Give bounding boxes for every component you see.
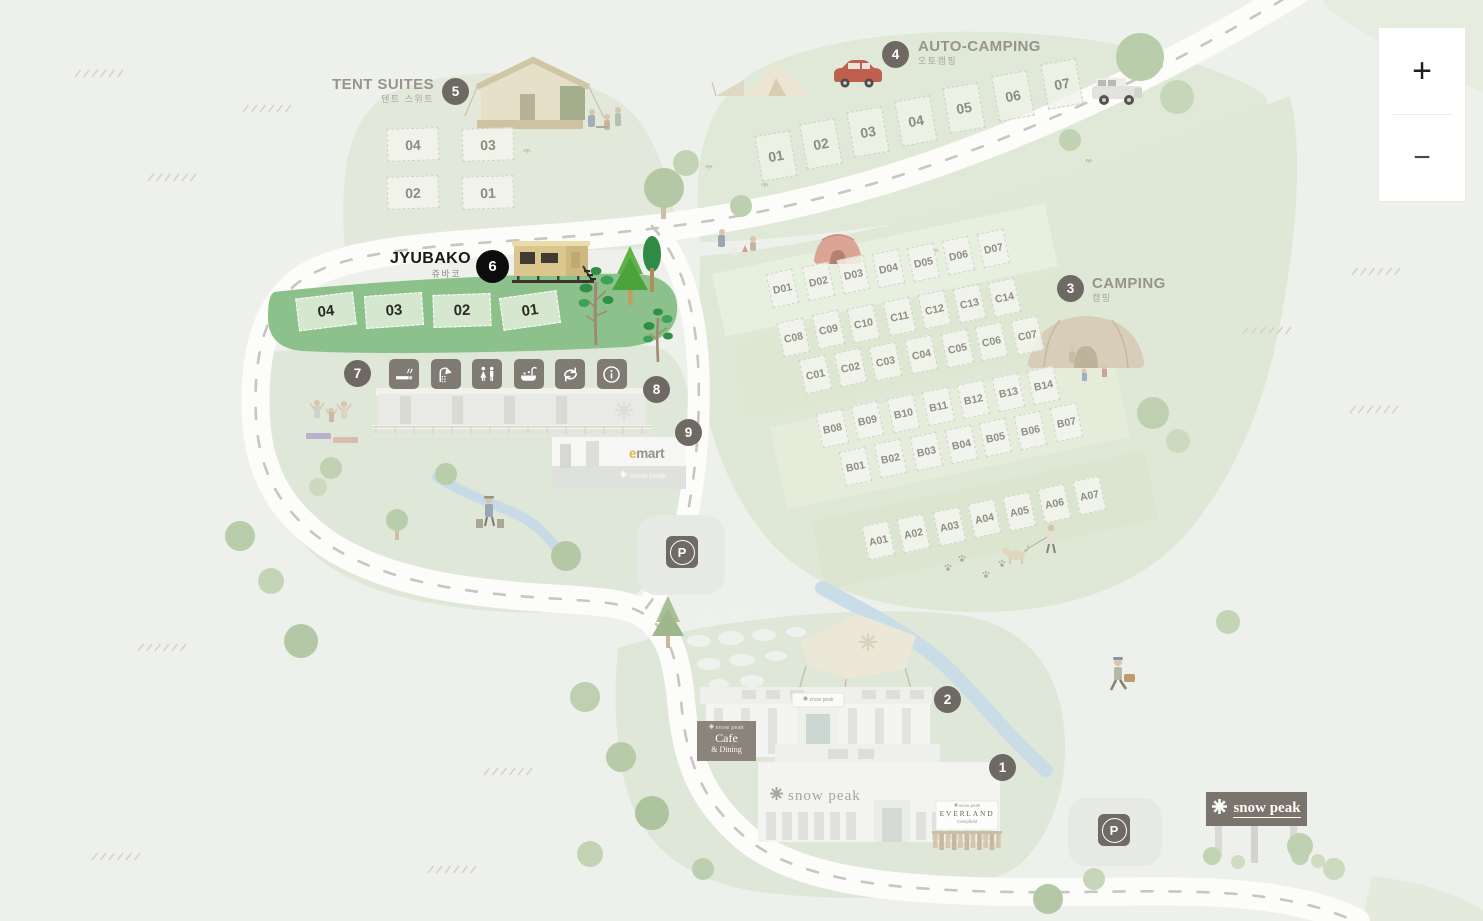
marker-8[interactable]: 8 bbox=[643, 376, 670, 403]
site-tile-A01: A01 bbox=[861, 520, 895, 560]
auto-camping-title: AUTO-CAMPING bbox=[918, 39, 1041, 54]
parking-icon: P bbox=[1098, 814, 1130, 846]
site-tile-A04: A04 bbox=[967, 498, 1001, 538]
site-tile-B02: B02 bbox=[873, 438, 907, 478]
site-tile-C01: C01 bbox=[798, 354, 832, 394]
zoom-control: + − bbox=[1378, 27, 1466, 202]
site-tile-05: 05 bbox=[942, 82, 985, 134]
site-tile-02: 02 bbox=[386, 175, 439, 210]
site-tile-04: 04 bbox=[894, 95, 937, 147]
site-tile-A05: A05 bbox=[1002, 491, 1036, 531]
site-tile-C07: C07 bbox=[1010, 315, 1044, 355]
site-tile-C02: C02 bbox=[833, 347, 867, 387]
site-tile-01: 01 bbox=[499, 290, 561, 331]
smoking-area-icon bbox=[389, 359, 419, 389]
cafe-dining-sign: snow peak Cafe & Dining bbox=[697, 721, 756, 761]
site-tile-B09: B09 bbox=[850, 400, 884, 440]
zone-label-tent-suites: TENT SUITES 텐트 스위트 bbox=[312, 77, 434, 104]
snow-peak-logo-icon bbox=[954, 803, 958, 808]
site-tile-A07: A07 bbox=[1072, 475, 1106, 515]
cafe-sign-subtitle: & Dining bbox=[697, 746, 756, 755]
site-tile-06: 06 bbox=[991, 70, 1034, 122]
site-tile-B03: B03 bbox=[909, 431, 943, 471]
camping-subtitle: 캠핑 bbox=[1092, 294, 1166, 303]
site-tile-04: 04 bbox=[386, 127, 439, 162]
jyubako-title: JYUBAKO bbox=[361, 251, 471, 267]
site-tile-03: 03 bbox=[461, 127, 514, 162]
camping-title: CAMPING bbox=[1092, 276, 1166, 291]
site-tile-01: 01 bbox=[754, 130, 797, 182]
site-tile-C03: C03 bbox=[868, 341, 902, 381]
cafe-arch-brand: snow peak bbox=[793, 696, 843, 703]
snow-peak-logo-icon bbox=[620, 471, 627, 480]
site-tile-D06: D06 bbox=[941, 235, 975, 275]
marker-1[interactable]: 1 bbox=[989, 754, 1016, 781]
site-tile-D07: D07 bbox=[976, 228, 1010, 268]
site-tile-A06: A06 bbox=[1037, 483, 1071, 523]
cafe-sign-title: Cafe bbox=[697, 732, 756, 746]
snow-peak-logo-icon bbox=[770, 787, 783, 805]
site-tile-B06: B06 bbox=[1013, 410, 1047, 450]
site-tile-B14: B14 bbox=[1026, 365, 1060, 405]
snow-peak-billboard: snow peak bbox=[1206, 792, 1307, 826]
marker-9[interactable]: 9 bbox=[675, 419, 702, 446]
emart-snow-peak-brand: snow peak bbox=[620, 471, 666, 480]
marker-3-camping[interactable]: 3 bbox=[1057, 275, 1084, 302]
site-tile-C13: C13 bbox=[952, 283, 986, 323]
site-tile-D01: D01 bbox=[765, 268, 799, 308]
site-tile-07: 07 bbox=[1040, 58, 1083, 110]
tent-suites-subtitle: 텐트 스위트 bbox=[312, 95, 434, 104]
site-tile-B11: B11 bbox=[921, 386, 955, 426]
tent-suites-title: TENT SUITES bbox=[312, 77, 434, 92]
zone-label-auto-camping: AUTO-CAMPING 오토캠핑 bbox=[918, 39, 1041, 66]
auto-camping-subtitle: 오토캠핑 bbox=[918, 57, 1041, 66]
site-tile-B05: B05 bbox=[978, 417, 1012, 457]
everland-sign: snow peak EVERLAND Campfield bbox=[936, 801, 998, 830]
site-tile-C04: C04 bbox=[904, 334, 938, 374]
site-tile-C05: C05 bbox=[940, 328, 974, 368]
shower-icon bbox=[431, 359, 461, 389]
site-tile-B04: B04 bbox=[944, 424, 978, 464]
site-tile-C08: C08 bbox=[776, 317, 810, 357]
zoom-out-button[interactable]: − bbox=[1379, 115, 1465, 201]
site-tile-C06: C06 bbox=[974, 321, 1008, 361]
restroom-icon bbox=[472, 359, 502, 389]
site-tile-C10: C10 bbox=[846, 303, 880, 343]
parking-letter: P bbox=[1110, 823, 1119, 838]
site-tile-D05: D05 bbox=[906, 242, 940, 282]
parking-letter: P bbox=[678, 545, 687, 560]
cafe-sign-brand: snow peak bbox=[716, 725, 744, 731]
site-tile-02: 02 bbox=[432, 292, 491, 327]
site-tile-D03: D03 bbox=[836, 254, 870, 294]
marker-5-tent-suites[interactable]: 5 bbox=[442, 78, 469, 105]
site-tile-B10: B10 bbox=[886, 393, 920, 433]
site-tile-B13: B13 bbox=[991, 372, 1025, 412]
zoom-in-button[interactable]: + bbox=[1379, 28, 1465, 114]
zone-label-camping: CAMPING 캠핑 bbox=[1092, 276, 1166, 303]
site-tile-03: 03 bbox=[364, 292, 424, 329]
emart-logo: emart bbox=[629, 446, 664, 461]
site-tile-C12: C12 bbox=[917, 289, 951, 329]
marker-2[interactable]: 2 bbox=[934, 686, 961, 713]
site-tile-D02: D02 bbox=[801, 261, 835, 301]
washroom-icon bbox=[514, 359, 544, 389]
site-tile-B08: B08 bbox=[815, 408, 849, 448]
snow-peak-logo-icon bbox=[709, 724, 714, 731]
marker-6-jyubako-active[interactable]: 6 bbox=[476, 250, 509, 283]
site-tile-04: 04 bbox=[295, 291, 357, 331]
marker-4-auto-camping[interactable]: 4 bbox=[882, 41, 909, 68]
site-tile-C11: C11 bbox=[882, 296, 916, 336]
snow-peak-logo-icon bbox=[803, 696, 808, 703]
site-tile-C14: C14 bbox=[987, 277, 1021, 317]
site-tile-A02: A02 bbox=[896, 513, 930, 553]
store-snow-peak-brand: snow peak bbox=[770, 787, 861, 805]
information-icon bbox=[597, 359, 627, 389]
site-tile-03: 03 bbox=[846, 106, 889, 158]
recycling-icon bbox=[555, 359, 585, 389]
site-tile-B01: B01 bbox=[838, 446, 872, 486]
site-tile-D04: D04 bbox=[871, 248, 905, 288]
site-tile-01: 01 bbox=[461, 175, 514, 210]
jyubako-subtitle: 쥬바코 bbox=[361, 270, 471, 279]
site-tile-A03: A03 bbox=[932, 506, 966, 546]
snow-peak-logo-icon bbox=[1212, 799, 1227, 819]
campground-map[interactable]: TENT SUITES 텐트 스위트 AUTO-CAMPING 오토캠핑 JYU… bbox=[0, 0, 1483, 921]
site-tile-C09: C09 bbox=[811, 309, 845, 349]
marker-7[interactable]: 7 bbox=[344, 360, 371, 387]
zone-label-jyubako: JYUBAKO 쥬바코 bbox=[361, 251, 471, 279]
site-tile-02: 02 bbox=[799, 118, 842, 170]
site-tile-B07: B07 bbox=[1049, 402, 1083, 442]
site-tile-B12: B12 bbox=[956, 379, 990, 419]
parking-icon: P bbox=[666, 536, 698, 568]
